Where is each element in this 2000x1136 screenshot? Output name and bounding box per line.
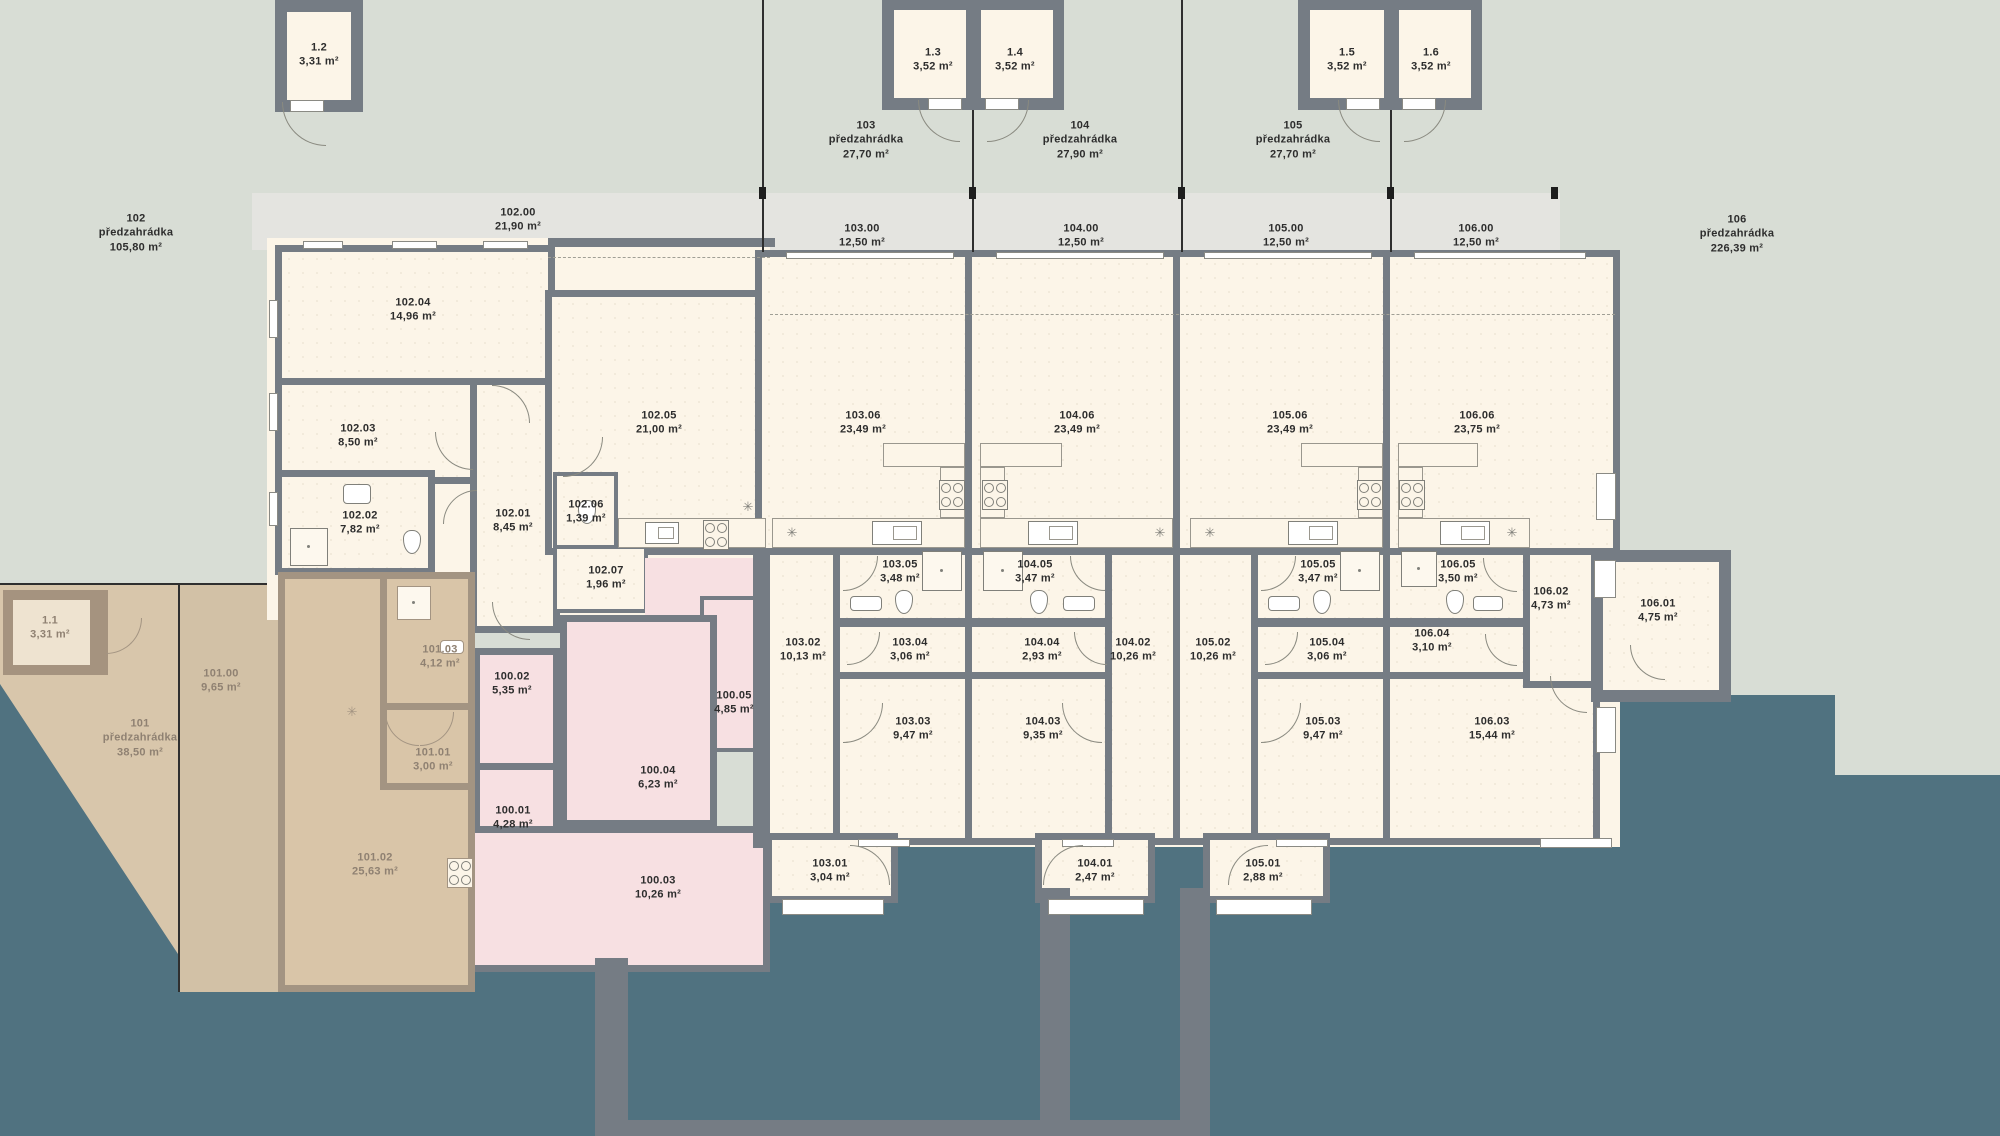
room-label: 1.4 3,52 m² (995, 46, 1035, 75)
sink-icon-105 (1288, 521, 1338, 545)
room-number: 100.04 (638, 764, 678, 778)
light-icon: ✳ (1507, 525, 1518, 541)
window-north-2 (392, 241, 437, 249)
garden-number: 104 (1043, 119, 1118, 133)
room-number: 105.01 (1243, 857, 1283, 871)
room-105-03 (1251, 672, 1398, 845)
door-arc (1338, 100, 1380, 142)
room-label: 100.05 4,85 m² (714, 689, 754, 718)
room-number: 104.01 (1075, 857, 1115, 871)
room-number: 105.05 (1298, 558, 1338, 572)
basin-icon-102-02 (343, 484, 371, 504)
basin-icon-103-05 (850, 596, 882, 611)
basin-icon-106-05 (1473, 596, 1503, 611)
kitchen-island-106 (1398, 443, 1478, 467)
garden-number: 103 (829, 119, 904, 133)
room-area: 15,44 m² (1469, 729, 1515, 743)
room-number: 101.00 (201, 667, 241, 681)
sink-icon-106 (1440, 521, 1490, 545)
door-arc (918, 100, 960, 142)
room-area: 8,45 m² (493, 521, 533, 535)
room-number: 106.04 (1412, 627, 1452, 641)
room-number: 104.04 (1022, 636, 1062, 650)
room-area: 3,04 m² (810, 871, 850, 885)
walkway-101-00 (178, 583, 278, 992)
room-label: 106.05 3,50 m² (1438, 558, 1478, 587)
room-number: 105.04 (1307, 636, 1347, 650)
room-area: 23,49 m² (1054, 423, 1100, 437)
room-label: 100.02 5,35 m² (492, 670, 532, 699)
room-number: 104.00 (1058, 222, 1104, 236)
garden-type: předzahrádka (1043, 133, 1118, 147)
room-area: 4,73 m² (1531, 599, 1571, 613)
garden-area: 27,90 m² (1043, 147, 1118, 161)
room-label: 103.06 23,49 m² (840, 409, 886, 438)
garden-label: 105 předzahrádka 27,70 m² (1256, 119, 1331, 162)
basin-icon-105-05 (1268, 596, 1300, 611)
room-104-03 (965, 672, 1112, 845)
room-area: 3,31 m² (30, 628, 70, 642)
garden-type: předzahrádka (1700, 227, 1775, 241)
room-area: 1,39 m² (566, 512, 606, 526)
room-label: 1.5 3,52 m² (1327, 46, 1367, 75)
garden-area: 226,39 m² (1700, 241, 1775, 255)
room-area: 9,47 m² (1303, 729, 1343, 743)
window-east-2 (1596, 707, 1616, 753)
shower-icon-106-05 (1401, 551, 1437, 587)
room-area: 12,50 m² (1058, 236, 1104, 250)
room-number: 105.02 (1190, 636, 1236, 650)
room-label: 100.04 6,23 m² (638, 764, 678, 793)
room-area: 9,65 m² (201, 681, 241, 695)
garden-number: 106 (1700, 213, 1775, 227)
shower-icon-105-05 (1340, 551, 1380, 591)
hob-icon-104 (982, 480, 1008, 510)
room-label: 100.03 10,26 m² (635, 874, 681, 903)
room-area: 3,52 m² (1327, 60, 1367, 74)
wall-stub-a (595, 958, 628, 1136)
room-label: 105.05 3,47 m² (1298, 558, 1338, 587)
room-area: 10,26 m² (1110, 650, 1156, 664)
room-label: 105.00 12,50 m² (1263, 222, 1309, 251)
garden-boundary-line (0, 583, 278, 585)
room-number: 106.02 (1531, 585, 1571, 599)
room-label: 106.01 4,75 m² (1638, 597, 1678, 626)
room-label: 104.05 3,47 m² (1015, 558, 1055, 587)
room-area: 4,75 m² (1638, 611, 1678, 625)
room-label: 101.03 4,12 m² (420, 643, 460, 672)
hob-icon-105 (1357, 480, 1383, 510)
fence-post (1387, 187, 1394, 199)
room-number: 101.01 (413, 746, 453, 760)
room-area: 3,31 m² (299, 55, 339, 69)
room-number: 103.01 (810, 857, 850, 871)
room-area: 9,47 m² (893, 729, 933, 743)
room-area: 25,63 m² (352, 865, 398, 879)
hob-icon-101 (447, 858, 473, 888)
fence-post (1551, 187, 1558, 199)
garden-number: 102 (99, 212, 174, 226)
garden-number: 105 (1256, 119, 1331, 133)
room-area: 3,50 m² (1438, 572, 1478, 586)
room-area: 1,96 m² (586, 578, 626, 592)
room-label: 1.3 3,52 m² (913, 46, 953, 75)
window-north-3 (483, 241, 528, 249)
porch-step-104 (1048, 899, 1144, 915)
room-label: 101.01 3,00 m² (413, 746, 453, 775)
fence-post (1178, 187, 1185, 199)
room-area: 8,50 m² (338, 436, 378, 450)
room-number: 103.03 (893, 715, 933, 729)
room-label: 104.01 2,47 m² (1075, 857, 1115, 886)
room-number: 102.07 (586, 564, 626, 578)
room-area: 9,35 m² (1023, 729, 1063, 743)
door-annex (1594, 560, 1616, 598)
overhang-line-main (770, 314, 1615, 315)
room-label: 106.02 4,73 m² (1531, 585, 1571, 614)
door-104-porch (1062, 839, 1114, 847)
room-label: 102.00 21,90 m² (495, 206, 541, 235)
garden-number: 101 (103, 717, 178, 731)
room-number: 100.05 (714, 689, 754, 703)
room-103-03 (833, 672, 980, 845)
shower-icon-101-03 (397, 586, 431, 620)
room-area: 14,96 m² (390, 310, 436, 324)
room-number: 101.02 (352, 851, 398, 865)
room-100-02 (473, 648, 560, 775)
garden-label: 104 předzahrádka 27,90 m² (1043, 119, 1118, 162)
room-label: 105.06 23,49 m² (1267, 409, 1313, 438)
room-number: 102.05 (636, 409, 682, 423)
room-number: 102.03 (338, 422, 378, 436)
room-number: 103.06 (840, 409, 886, 423)
shower-icon-103-05 (922, 551, 962, 591)
room-label: 1.1 3,31 m² (30, 614, 70, 643)
garden-type: předzahrádka (103, 731, 178, 745)
window-west-2 (269, 393, 278, 431)
room-number: 102.00 (495, 206, 541, 220)
room-label: 104.00 12,50 m² (1058, 222, 1104, 251)
room-number: 1.6 (1411, 46, 1451, 60)
room-label: 102.02 7,82 m² (340, 509, 380, 538)
boundary-wall-south (598, 1120, 1210, 1136)
kitchen-island-103 (883, 443, 965, 467)
room-number: 102.06 (566, 498, 606, 512)
room-number: 106.01 (1638, 597, 1678, 611)
room-number: 103.02 (780, 636, 826, 650)
garden-type: předzahrádka (99, 226, 174, 240)
room-area: 3,52 m² (1411, 60, 1451, 74)
room-label: 104.02 10,26 m² (1110, 636, 1156, 665)
room-area: 3,48 m² (880, 572, 920, 586)
glazing-103 (786, 252, 954, 259)
room-label: 102.06 1,39 m² (566, 498, 606, 527)
door-arc (282, 102, 326, 146)
light-icon: ✳ (743, 499, 754, 515)
kitchen-counter-102 (618, 518, 766, 548)
room-area: 3,10 m² (1412, 641, 1452, 655)
room-label: 1.2 3,31 m² (299, 41, 339, 70)
garden-type: předzahrádka (829, 133, 904, 147)
room-number: 100.01 (493, 804, 533, 818)
room-number: 1.5 (1327, 46, 1367, 60)
room-number: 103.04 (890, 636, 930, 650)
kitchen-counter-103 (772, 518, 965, 548)
room-label: 104.06 23,49 m² (1054, 409, 1100, 438)
window-north-1 (303, 241, 343, 249)
room-area: 4,12 m² (420, 657, 460, 671)
room-area: 10,26 m² (635, 888, 681, 902)
room-number: 100.03 (635, 874, 681, 888)
room-100-03 (460, 826, 770, 972)
room-number: 105.00 (1263, 222, 1309, 236)
room-number: 104.05 (1015, 558, 1055, 572)
room-area: 4,85 m² (714, 703, 754, 717)
room-area: 21,90 m² (495, 220, 541, 234)
room-area: 23,49 m² (1267, 423, 1313, 437)
room-area: 12,50 m² (1263, 236, 1309, 250)
room-area: 3,06 m² (890, 650, 930, 664)
floor-plan: 1.2 3,31 m² 1.3 3,52 m² 1.4 3,52 m² 1.5 … (0, 0, 2000, 1136)
room-area: 4,28 m² (493, 818, 533, 832)
garden-area: 27,70 m² (829, 147, 904, 161)
porch-step-105 (1216, 899, 1312, 915)
door-arc (1404, 100, 1446, 142)
room-area: 23,49 m² (840, 423, 886, 437)
room-area: 6,23 m² (638, 778, 678, 792)
room-label: 103.05 3,48 m² (880, 558, 920, 587)
room-number: 101.03 (420, 643, 460, 657)
room-label: 101.00 9,65 m² (201, 667, 241, 696)
room-area: 3,00 m² (413, 760, 453, 774)
room-label: 106.00 12,50 m² (1453, 222, 1499, 251)
garden-area: 27,70 m² (1256, 147, 1331, 161)
light-icon: ✳ (787, 525, 798, 541)
room-number: 103.05 (880, 558, 920, 572)
room-number: 106.03 (1469, 715, 1515, 729)
wall-stub-b (1040, 888, 1070, 1136)
room-number: 106.00 (1453, 222, 1499, 236)
room-label: 102.01 8,45 m² (493, 507, 533, 536)
room-number: 102.01 (493, 507, 533, 521)
room-number: 1.2 (299, 41, 339, 55)
room-area: 23,75 m² (1454, 423, 1500, 437)
garden-area: 105,80 m² (99, 240, 174, 254)
room-label: 100.01 4,28 m² (493, 804, 533, 833)
garden-area: 38,50 m² (103, 745, 178, 759)
garden-label: 101 předzahrádka 38,50 m² (103, 717, 178, 760)
hob-icon-102 (703, 520, 729, 550)
room-number: 105.06 (1267, 409, 1313, 423)
room-area: 12,50 m² (1453, 236, 1499, 250)
glazing-106 (1414, 252, 1586, 259)
glazing-105 (1204, 252, 1372, 259)
fence-102-103 (762, 0, 764, 252)
porch-step-103 (782, 899, 884, 915)
kitchen-island-105 (1301, 443, 1383, 467)
door-arc (492, 602, 530, 640)
window-west-1 (269, 300, 278, 338)
room-area: 21,00 m² (636, 423, 682, 437)
window-west-3 (269, 492, 278, 526)
light-icon: ✳ (1205, 525, 1216, 541)
fence-105-106 (1390, 108, 1392, 252)
hob-icon-106 (1399, 480, 1425, 510)
room-area: 2,88 m² (1243, 871, 1283, 885)
room-area: 2,47 m² (1075, 871, 1115, 885)
room-label: 103.03 9,47 m² (893, 715, 933, 744)
fence-post (969, 187, 976, 199)
room-area: 10,13 m² (780, 650, 826, 664)
room-label: 106.04 3,10 m² (1412, 627, 1452, 656)
room-number: 1.3 (913, 46, 953, 60)
light-icon: ✳ (347, 704, 358, 720)
overhang-line-west (548, 257, 770, 258)
room-number: 106.06 (1454, 409, 1500, 423)
room-area: 5,35 m² (492, 684, 532, 698)
room-area: 7,82 m² (340, 523, 380, 537)
sink-icon-104 (1028, 521, 1078, 545)
room-label: 102.07 1,96 m² (586, 564, 626, 593)
garden-label: 103 předzahrádka 27,70 m² (829, 119, 904, 162)
room-number: 1.4 (995, 46, 1035, 60)
room-label: 104.04 2,93 m² (1022, 636, 1062, 665)
room-area: 3,52 m² (913, 60, 953, 74)
room-label: 103.02 10,13 m² (780, 636, 826, 665)
room-label: 103.04 3,06 m² (890, 636, 930, 665)
room-number: 1.1 (30, 614, 70, 628)
room-number: 104.02 (1110, 636, 1156, 650)
room-area: 10,26 m² (1190, 650, 1236, 664)
room-area: 12,50 m² (839, 236, 885, 250)
room-label: 103.00 12,50 m² (839, 222, 885, 251)
party-wall-extension (753, 548, 770, 848)
room-area: 2,93 m² (1022, 650, 1062, 664)
sink-icon-102 (645, 522, 679, 544)
light-icon: ✳ (1155, 525, 1166, 541)
sink-icon-103 (872, 521, 922, 545)
room-label: 102.04 14,96 m² (390, 296, 436, 325)
wall-stub-c (1180, 888, 1210, 1136)
room-label: 105.01 2,88 m² (1243, 857, 1283, 886)
door-arc (987, 100, 1029, 142)
garden-type: předzahrádka (1256, 133, 1331, 147)
room-area: 3,52 m² (995, 60, 1035, 74)
room-area: 3,06 m² (1307, 650, 1347, 664)
room-label: 102.05 21,00 m² (636, 409, 682, 438)
room-number: 104.03 (1023, 715, 1063, 729)
room-label: 105.03 9,47 m² (1303, 715, 1343, 744)
room-number: 106.05 (1438, 558, 1478, 572)
room-label: 104.03 9,35 m² (1023, 715, 1063, 744)
room-number: 102.04 (390, 296, 436, 310)
window-east-1 (1596, 473, 1616, 520)
kitchen-island-104 (980, 443, 1062, 467)
glazing-104 (996, 252, 1164, 259)
room-number: 100.02 (492, 670, 532, 684)
room-number: 104.06 (1054, 409, 1100, 423)
fence-103-104 (972, 108, 974, 252)
room-number: 105.03 (1303, 715, 1343, 729)
room-label: 105.02 10,26 m² (1190, 636, 1236, 665)
fence-104-105 (1181, 0, 1183, 252)
room-label: 106.03 15,44 m² (1469, 715, 1515, 744)
room-label: 102.03 8,50 m² (338, 422, 378, 451)
room-label: 103.01 3,04 m² (810, 857, 850, 886)
basin-icon-104-05 (1063, 596, 1095, 611)
room-number: 102.02 (340, 509, 380, 523)
garden-label: 106 předzahrádka 226,39 m² (1700, 213, 1775, 256)
room-area: 3,47 m² (1298, 572, 1338, 586)
door-105-porch (1276, 839, 1328, 847)
fence-post (759, 187, 766, 199)
hob-icon-103 (939, 480, 965, 510)
room-label: 1.6 3,52 m² (1411, 46, 1451, 75)
kitchen-counter-105 (1190, 518, 1383, 548)
garden-fence-101 (178, 583, 180, 992)
room-label: 101.02 25,63 m² (352, 851, 398, 880)
shower-icon-102-02 (290, 528, 328, 566)
door-106-03-terrace (1540, 838, 1612, 848)
facade-wall-west (548, 238, 775, 247)
door-103-porch (858, 839, 910, 847)
room-number: 103.00 (839, 222, 885, 236)
room-area: 3,47 m² (1015, 572, 1055, 586)
room-label: 106.06 23,75 m² (1454, 409, 1500, 438)
room-label: 105.04 3,06 m² (1307, 636, 1347, 665)
room-100-04 (560, 615, 717, 827)
garden-label: 102 předzahrádka 105,80 m² (99, 212, 174, 255)
